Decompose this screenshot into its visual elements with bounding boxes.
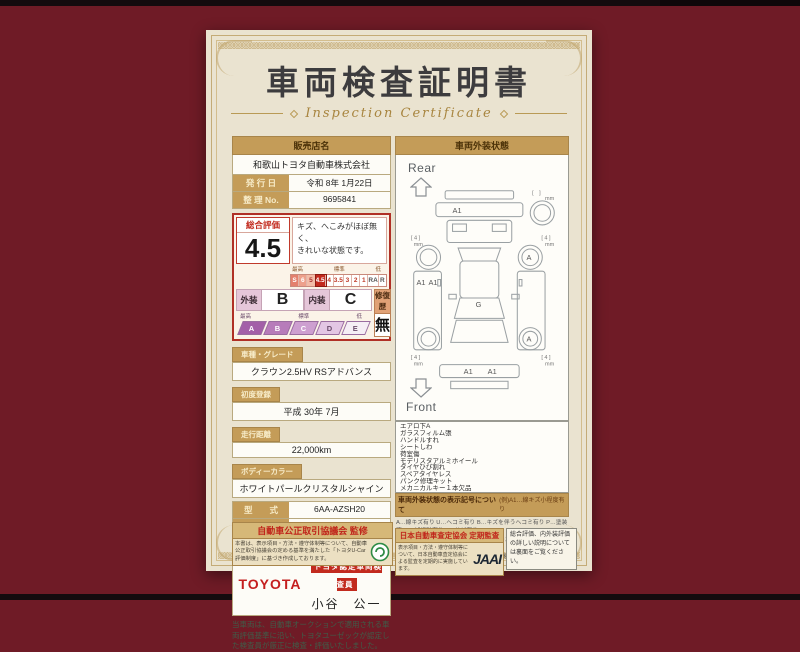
exterior-interior-row: 外装 B 内装 C <box>236 289 372 311</box>
fair-trade-council-logo-icon <box>370 542 390 562</box>
condition-notes-list: エアロ下A ガラスフィルム張 ハンドルすれ シートしわ 荷室傷 モデリスタアルミ… <box>395 421 569 493</box>
scale-label-mid: 標準 <box>298 312 309 320</box>
grade-cell: E <box>341 321 371 335</box>
jaai-audit-title: 日本自動車査定協会 定期監査 <box>396 529 503 543</box>
model-code-label: 型 式 <box>233 502 289 518</box>
interior-label: 内装 <box>304 289 330 311</box>
scale-cell: 3.5 <box>334 275 344 286</box>
fair-trade-council-body: 本書は、表示項目・方法・遵守体制等について、自動車公正取引協議会の定める基準を満… <box>233 539 392 565</box>
panel-mark-g: G <box>476 300 482 309</box>
scale-label-mid: 標準 <box>334 265 345 273</box>
scale-label-high: 最高 <box>240 312 251 320</box>
legend-example: (例)A1…線キズ小程度有り <box>499 495 566 513</box>
seller-name: 和歌山トヨタ自動車株式会社 <box>232 155 391 175</box>
rating-comment-line1: キズ、へこみがほぼ無く、 <box>297 221 384 245</box>
fair-trade-council-box: 自動車公正取引協議会 監修 本書は、表示項目・方法・遵守体制等について、自動車公… <box>232 522 393 566</box>
subtitle-rule-left <box>231 113 283 114</box>
measure-unit: mm <box>545 242 555 248</box>
tread-depth-measure: [ 4 ] <box>411 236 421 242</box>
grade-cell: C <box>289 321 319 335</box>
scale-cell-selected: 4.5 <box>316 275 326 286</box>
grade-scale-labels: 最高 標準 低 <box>236 311 372 320</box>
tread-depth-measure: [ 4 ] <box>541 355 551 361</box>
ornament-top <box>218 42 580 49</box>
overall-rating-box: 総合評価 4.5 キズ、へこみがほぼ無く、 きれいな状態です。 最高 標準 低 … <box>232 213 391 341</box>
front-arrow-icon <box>410 378 432 398</box>
vehicle-info-column: 販売店名 和歌山トヨタ自動車株式会社 発 行 日 令和 8年 1月22日 整 理… <box>232 136 391 652</box>
grade-cell: D <box>315 321 345 335</box>
scale-cell: RA <box>368 275 378 286</box>
rating-top-row: 総合評価 4.5 キズ、へこみがほぼ無く、 きれいな状態です。 <box>236 217 387 264</box>
scale-cell: 4 <box>326 275 334 286</box>
subtitle-diamond-icon <box>290 109 298 117</box>
bottom-black-bar <box>0 594 800 600</box>
overall-score-cell: 総合評価 4.5 <box>236 217 290 264</box>
scale-label-low: 低 <box>356 312 362 320</box>
wheel-mark-a: A <box>527 253 532 262</box>
model-code-row: 型 式 6AA-AZSH20 <box>232 501 391 519</box>
overall-score-value: 4.5 <box>237 233 289 263</box>
panel-mark-a1: A1 <box>488 367 497 376</box>
see-reverse-note: 総合評価、内外装評価の詳しい説明については裏面をご覧ください。 <box>506 528 577 570</box>
seller-header: 販売店名 <box>232 136 391 155</box>
repair-history-column: 修復歴 無 <box>374 289 391 337</box>
repair-history-label: 修復歴 <box>374 289 391 314</box>
score-scale: S 6 5 4.5 4 3.5 3 2 1 RA R <box>290 274 387 287</box>
spare-tire-measure: [ ] <box>532 190 541 196</box>
model-grade-label: 車種・グレード <box>232 347 303 362</box>
exterior-grade: B <box>262 289 304 311</box>
condition-note: シートしわ <box>400 445 568 452</box>
scale-cell: 2 <box>352 275 360 286</box>
first-registration-block: 初度登録 平成 30年 7月 <box>232 384 391 421</box>
grade-cell: B <box>263 321 293 335</box>
jaai-logo: JAAI <box>473 551 501 567</box>
panel-mark-a1: A1 <box>416 278 425 287</box>
interior-grade: C <box>330 289 372 311</box>
measure-unit: mm <box>414 242 424 248</box>
legend-title: 車両外装状態の表示記号について <box>398 495 496 515</box>
mileage-label: 走行距離 <box>232 427 280 442</box>
certificate-paper: 車両検査証明書 Inspection Certificate 販売店名 和歌山ト… <box>206 30 592 571</box>
exterior-condition-column: 車両外装状態 Rear <box>395 136 569 571</box>
scale-cell: 1 <box>360 275 368 286</box>
wheel-mark-a: A <box>527 334 532 343</box>
serial-no-row: 整 理 No. 9695841 <box>232 192 391 209</box>
scale-cell: S <box>291 275 299 286</box>
tread-depth-measure: [ 4 ] <box>411 355 421 361</box>
scale-cell: R <box>379 275 386 286</box>
grade-scale: A B C D E <box>236 320 372 337</box>
issue-date-label: 発 行 日 <box>233 175 289 191</box>
rating-comment-line2: きれいな状態です。 <box>297 245 384 257</box>
panel-mark-a1: A1 <box>429 278 438 287</box>
model-grade-block: 車種・グレード クラウン2.5HV RSアドバンス <box>232 344 391 381</box>
measure-unit: mm <box>545 362 555 368</box>
body-color-value: ホワイトパールクリスタルシャイン <box>232 479 391 498</box>
car-top-view-diagram: A1 A1 A1 G A A A1 A1 [ ] mm [ 4 ] mm [ 4… <box>410 183 558 401</box>
scale-label-low: 低 <box>375 265 381 273</box>
toyota-logo: TOYOTA <box>237 576 303 592</box>
subtitle-diamond-icon <box>499 109 507 117</box>
subtitle-rule-right <box>515 113 567 114</box>
rating-comment: キズ、へこみがほぼ無く、 きれいな状態です。 <box>292 217 387 264</box>
scale-cell: 6 <box>299 275 307 286</box>
certificate-subtitle-row: Inspection Certificate <box>206 106 592 121</box>
scale-label-high: 最高 <box>292 265 303 273</box>
issue-date-value: 令和 8年 1月22日 <box>289 175 390 191</box>
mileage-block: 走行距離 22,000km <box>232 424 391 458</box>
jaai-audit-text: 表示項目・方法・遵守体制等について、日本自動車査定協会による監査を定期的に実施し… <box>398 545 471 573</box>
panel-mark-a1: A1 <box>453 206 462 215</box>
corner-shadow <box>660 0 800 6</box>
scale-cell: 3 <box>344 275 352 286</box>
panel-mark-a1: A1 <box>464 367 473 376</box>
first-registration-label: 初度登録 <box>232 387 280 402</box>
inspection-disclaimer: 当車両は、自動車オークションで適用される車両評価基準に沿い、トヨタユーゼックが認… <box>232 620 391 652</box>
model-code-value: 6AA-AZSH20 <box>289 502 390 518</box>
overall-score-label: 総合評価 <box>237 218 289 233</box>
jaai-audit-body: 表示項目・方法・遵守体制等について、日本自動車査定協会による監査を定期的に実施し… <box>396 543 503 575</box>
score-scale-labels: 最高 標準 低 <box>236 264 387 273</box>
rear-label: Rear <box>408 161 436 175</box>
legend-header: 車両外装状態の表示記号について (例)A1…線キズ小程度有り <box>395 493 569 517</box>
inspector-name: 小谷 公一 <box>307 595 386 612</box>
car-diagram-panel: Rear <box>395 155 569 421</box>
grade-grid: 外装 B 内装 C 最高 標準 低 A B C D <box>236 289 387 337</box>
fair-trade-council-title: 自動車公正取引協議会 監修 <box>233 523 392 539</box>
issue-date-row: 発 行 日 令和 8年 1月22日 <box>232 175 391 192</box>
serial-no-value: 9695841 <box>289 192 390 208</box>
body-color-block: ボディーカラー ホワイトパールクリスタルシャイン <box>232 461 391 498</box>
measure-unit: mm <box>414 362 424 368</box>
grade-cell: A <box>237 321 267 335</box>
certificate-subtitle: Inspection Certificate <box>305 106 492 121</box>
mileage-value: 22,000km <box>232 442 391 458</box>
serial-no-label: 整 理 No. <box>233 192 289 208</box>
measure-unit: mm <box>545 196 555 202</box>
jaai-audit-box: 日本自動車査定協会 定期監査 表示項目・方法・遵守体制等について、日本自動車査定… <box>395 528 504 576</box>
scale-cell: 5 <box>307 275 315 286</box>
tread-depth-measure: [ 4 ] <box>541 236 551 242</box>
body-color-label: ボディーカラー <box>232 464 302 479</box>
model-grade-value: クラウン2.5HV RSアドバンス <box>232 362 391 381</box>
grade-grid-left: 外装 B 内装 C 最高 標準 低 A B C D <box>236 289 372 337</box>
fair-trade-council-text: 本書は、表示項目・方法・遵守体制等について、自動車公正取引協議会の定める基準を満… <box>235 541 368 563</box>
exterior-panel-header: 車両外装状態 <box>395 136 569 155</box>
first-registration-value: 平成 30年 7月 <box>232 402 391 421</box>
front-label: Front <box>406 400 437 414</box>
repair-history-value: 無 <box>374 314 391 338</box>
certificate-title: 車両検査証明書 <box>206 56 592 104</box>
exterior-label: 外装 <box>236 289 262 311</box>
